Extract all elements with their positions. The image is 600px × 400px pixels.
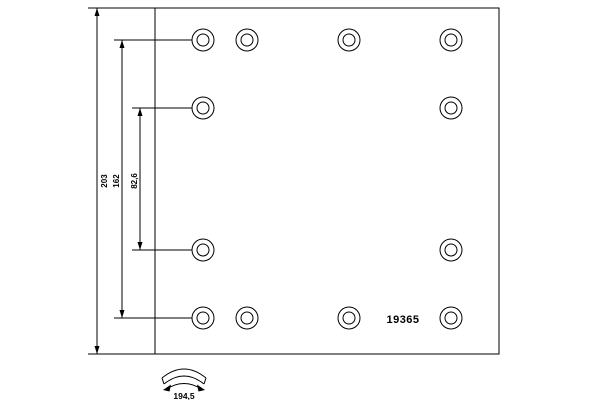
dimension-label-outer-hole-span: 162 [112,174,121,188]
rivet-hole-outer [440,307,462,329]
arrowhead-up [95,8,100,16]
rivet-hole-inner [343,34,355,46]
arrowhead-up [138,108,143,116]
rivet-hole-inner [445,312,457,324]
arc-arrowhead-left [163,385,171,392]
rivet-hole-inner [241,312,253,324]
rivet-hole-inner [197,34,209,46]
brake-lining-drawing: 203 162 82,6 19365 194,5 [0,0,600,400]
rivet-hole-outer [440,97,462,119]
rivet-hole-outer [192,29,214,51]
arc-outer [162,369,206,378]
arc-cross-section: 194,5 [162,369,206,400]
arc-dimension-line [165,384,203,391]
arc-arrowhead-right [197,385,205,392]
arc-end-right [204,378,206,384]
rivet-hole-outer [192,239,214,261]
arc-dimension-label: 194,5 [173,391,195,400]
rivet-hole-inner [445,34,457,46]
dimension-label-overall-height: 203 [100,174,109,188]
rivet-hole-outer [440,29,462,51]
technical-drawing-canvas: 203 162 82,6 19365 194,5 [0,0,600,400]
rivet-hole-inner [343,312,355,324]
arc-end-left [162,378,164,384]
part-number: 19365 [386,314,419,326]
dimension-label-inner-hole-span: 82,6 [130,173,139,189]
arrowhead-down [138,242,143,250]
rivet-hole-outer [440,239,462,261]
plate-outline [155,8,499,354]
arrowhead-down [95,346,100,354]
rivet-hole-inner [197,102,209,114]
rivet-hole-outer [236,307,258,329]
arrowhead-down [120,310,125,318]
rivet-hole-inner [197,244,209,256]
rivet-hole-inner [241,34,253,46]
rivet-hole-inner [197,312,209,324]
rivet-hole-outer [338,29,360,51]
rivet-hole-outer [338,307,360,329]
rivet-hole-outer [192,97,214,119]
rivet-hole-inner [445,102,457,114]
arc-inner [164,376,204,384]
rivet-hole-outer [192,307,214,329]
rivet-hole-inner [445,244,457,256]
rivet-hole-outer [236,29,258,51]
generated-geometry [88,8,462,354]
arrowhead-up [120,40,125,48]
